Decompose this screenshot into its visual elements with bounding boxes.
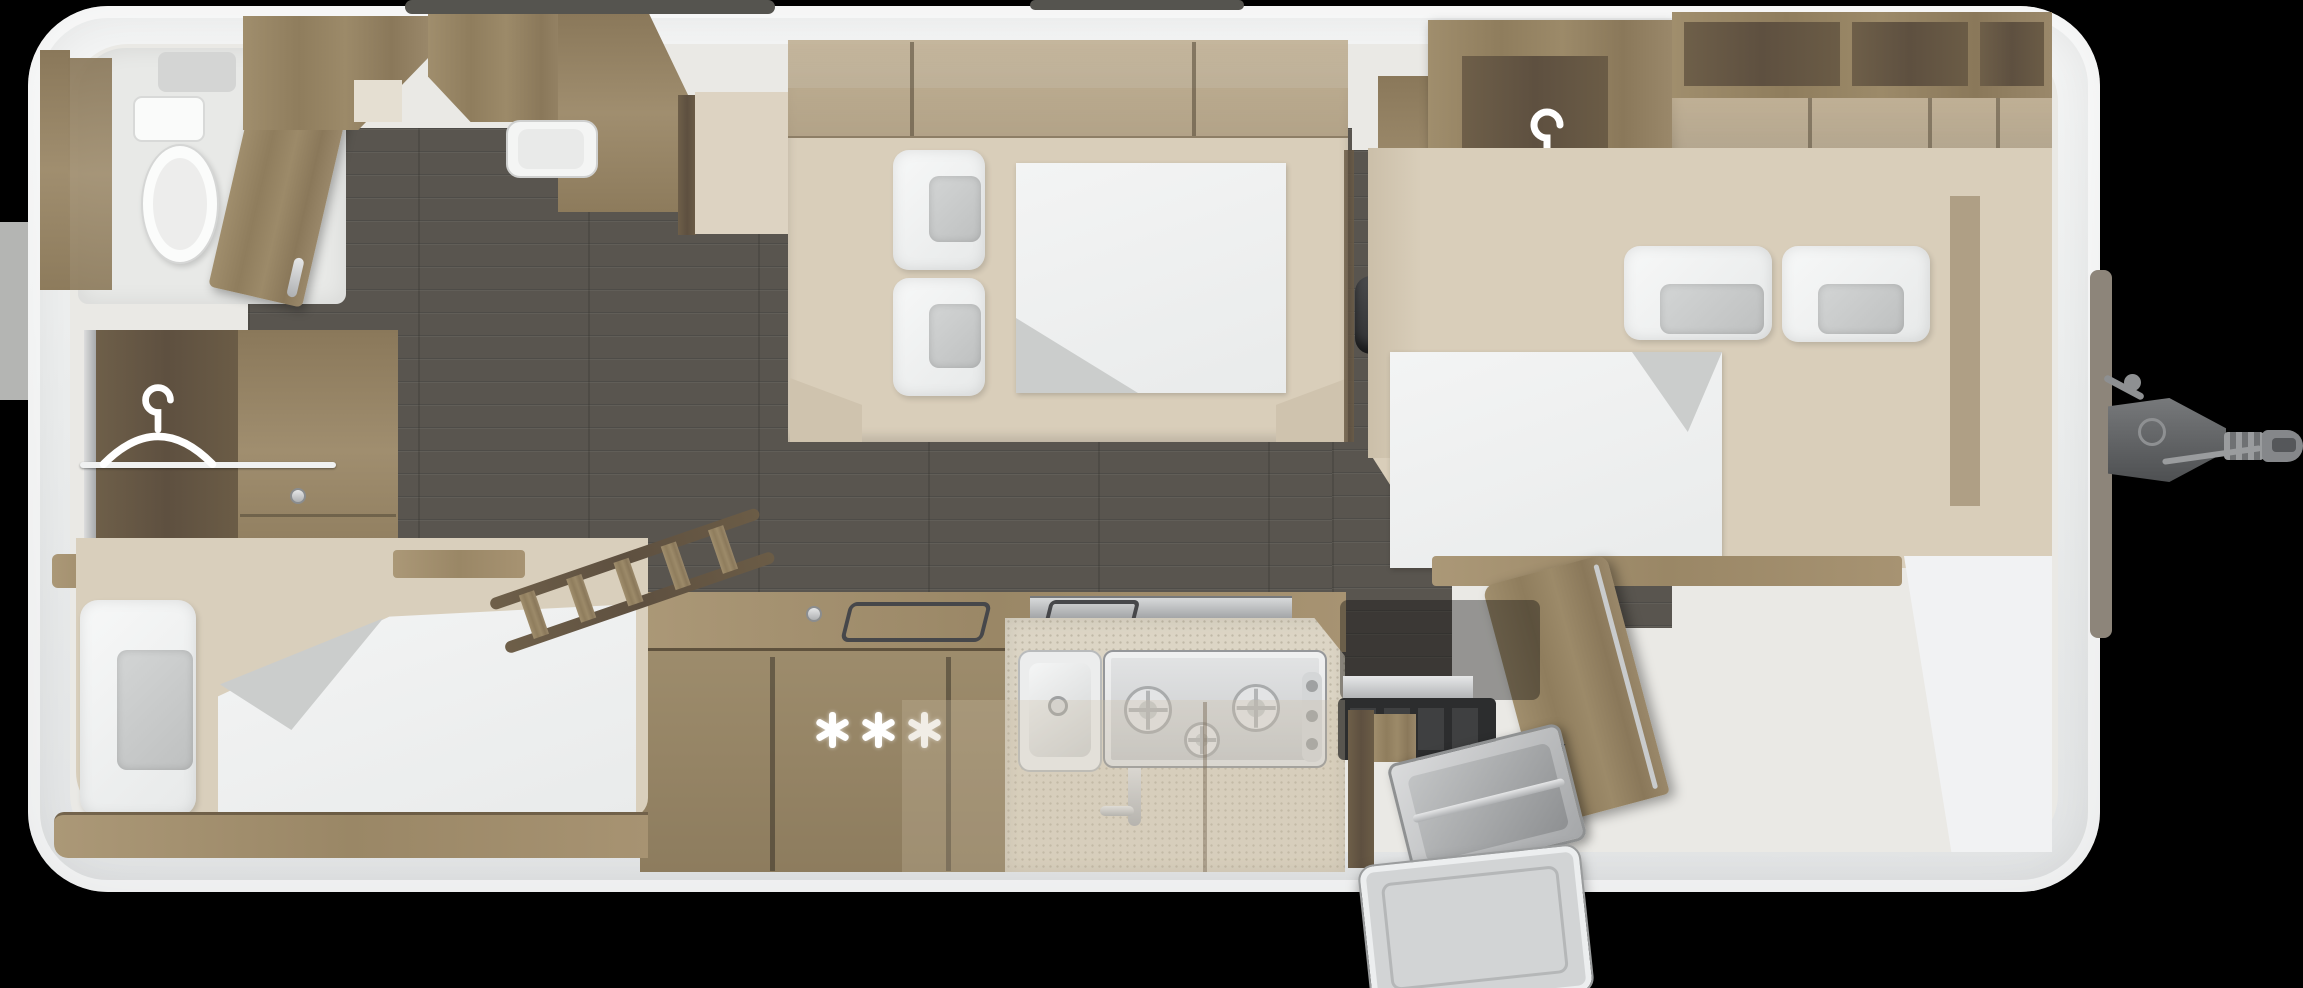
worktop-knob <box>806 606 822 622</box>
jockey-handle-knob <box>2124 374 2141 391</box>
washbasin <box>506 120 598 178</box>
bathroom-cabinet <box>68 58 112 290</box>
overhead-locker-band <box>1672 98 2052 150</box>
locker-bay <box>1684 22 1840 86</box>
ladder-rung <box>519 590 549 639</box>
locker-divider <box>1808 98 1812 148</box>
door-groove <box>240 514 396 517</box>
caravan-floorplan-render <box>0 0 2303 988</box>
door-knob <box>290 488 306 504</box>
coupler-slot <box>2272 438 2296 452</box>
cushion <box>929 304 981 368</box>
wall-ledge <box>393 550 525 578</box>
step-side <box>678 95 696 235</box>
worktop-flush-cover <box>840 602 992 642</box>
cushion <box>929 176 981 242</box>
door-handle <box>286 257 305 298</box>
locker-bay <box>1852 22 1968 86</box>
cushion <box>1660 284 1764 334</box>
clothes-hanger-icon <box>92 380 224 468</box>
washroom-partition <box>1374 714 1416 762</box>
toilet-seat <box>153 158 207 250</box>
shower-tray <box>158 52 236 92</box>
roof-rail <box>405 0 775 14</box>
hitch-coupler <box>2262 430 2303 462</box>
bed-side-panel <box>1344 150 1354 442</box>
six-spoke-asterisk-icon <box>814 712 850 748</box>
hitch-detail <box>2138 418 2166 446</box>
shelf <box>354 80 402 122</box>
six-spoke-asterisk-icon <box>860 712 896 748</box>
cushion <box>117 650 193 770</box>
locker-divider <box>910 42 914 136</box>
washbasin-bowl <box>518 129 584 169</box>
wall-wood-sliver <box>1950 196 1980 506</box>
tow-hitch-body <box>2108 398 2226 482</box>
locker-bay <box>1980 22 2044 86</box>
flap-edge <box>1203 702 1207 872</box>
roof-rail <box>1030 0 1244 10</box>
ladder-rung <box>661 541 691 590</box>
locker-divider <box>1996 98 2000 148</box>
ladder-rung <box>613 558 643 607</box>
locker-divider <box>1928 98 1932 148</box>
ladder-rung <box>708 525 738 574</box>
oven-trim <box>1343 676 1473 700</box>
entrance-door-open <box>1359 845 1593 988</box>
ladder-rung <box>566 574 596 623</box>
door-inner-panel <box>1381 865 1569 988</box>
cushion <box>1818 284 1904 334</box>
toilet-cistern <box>133 96 205 142</box>
bed-front-plank <box>54 812 648 858</box>
cabinet-divider <box>770 657 775 871</box>
wardrobe-door <box>238 330 398 572</box>
hob-knob <box>1306 680 1318 692</box>
overhead-locker-row <box>1672 12 2052 98</box>
washroom-partition <box>1348 710 1374 868</box>
overhead-locker-band <box>788 40 1348 138</box>
locker-divider <box>1192 42 1196 136</box>
step-panel <box>695 92 803 234</box>
bathroom-cabinet <box>40 50 70 290</box>
translucent-flap-overlay <box>902 700 1345 872</box>
